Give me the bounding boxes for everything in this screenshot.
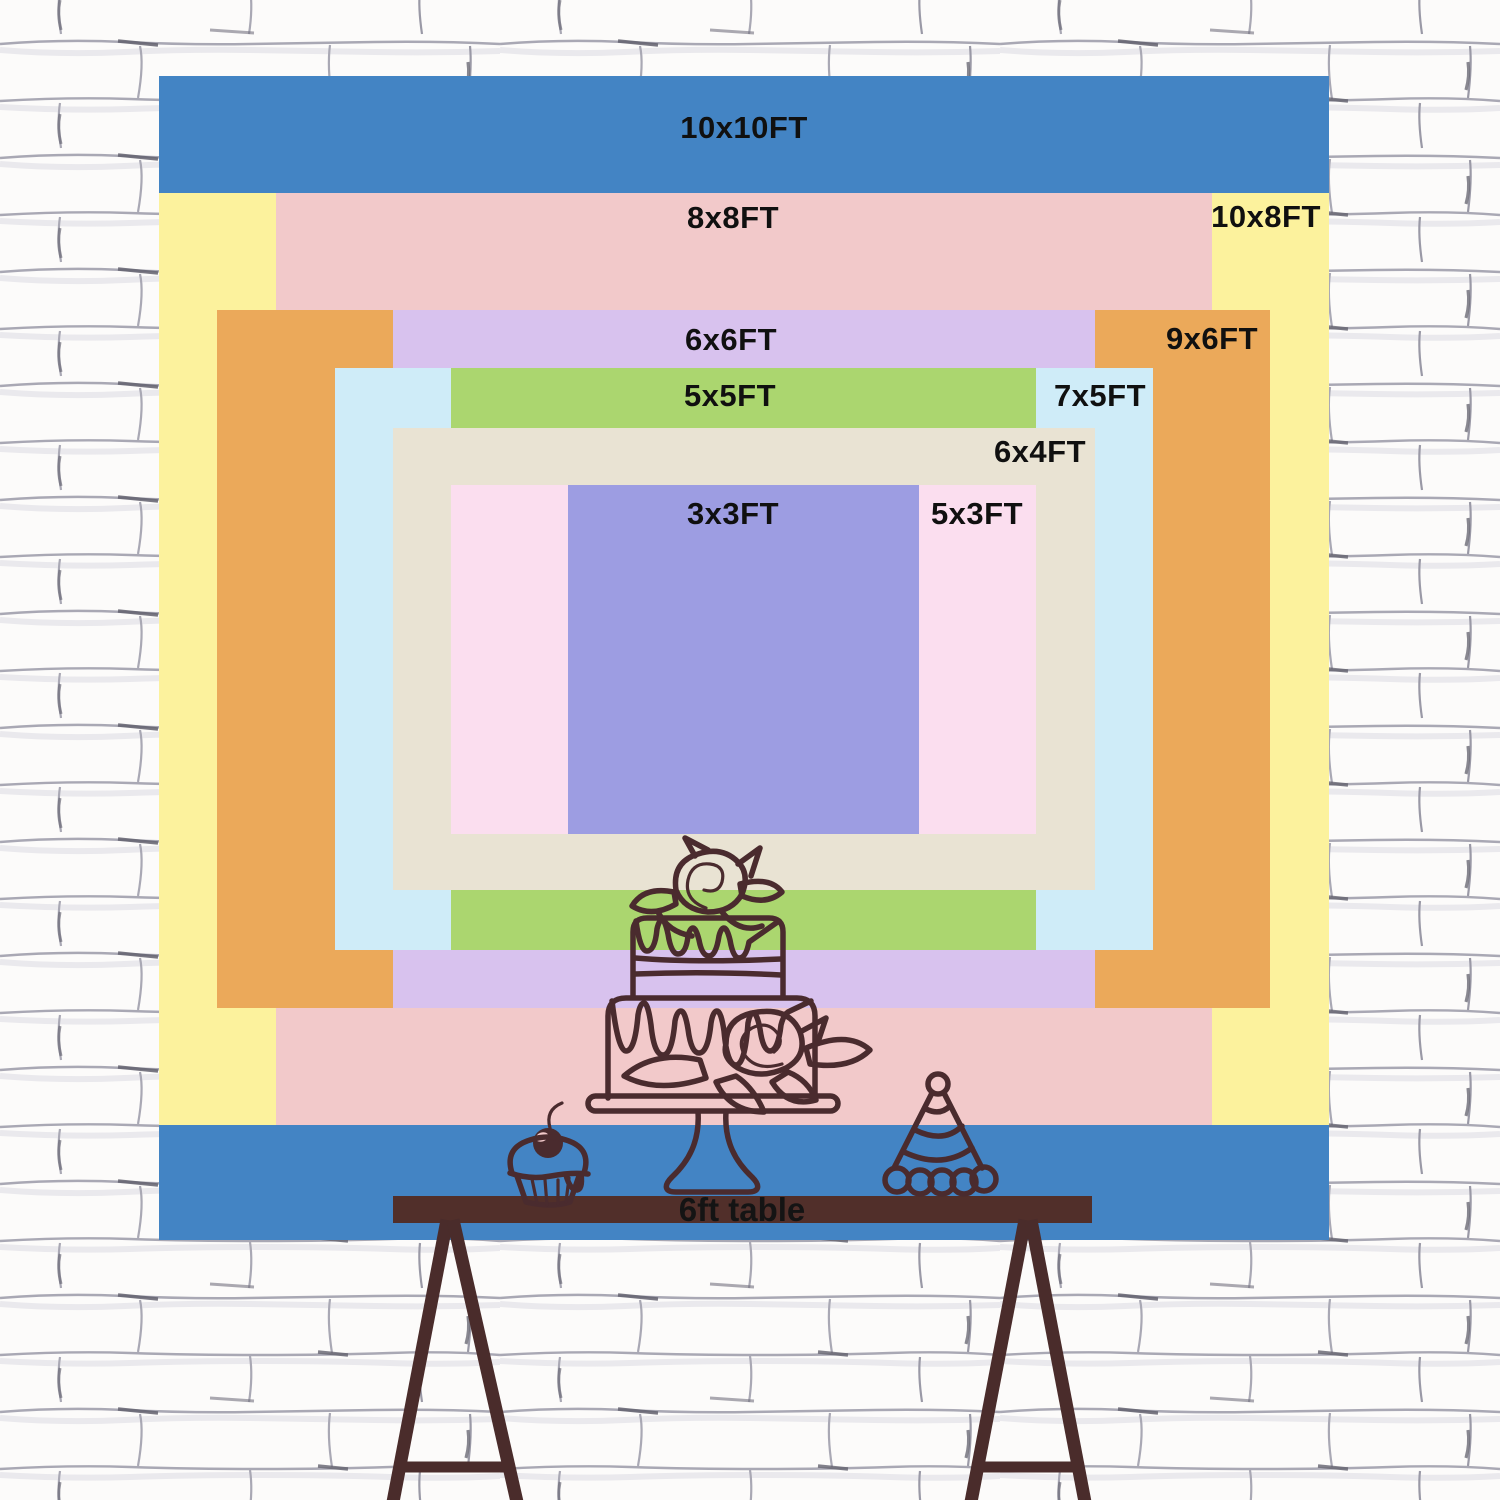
table-label: 6ft table xyxy=(679,1191,806,1229)
backdrop-size-chart-poster: 10x10FT 10x8FT 8x8FT 9x6FT 6x6FT 7x5FT 5… xyxy=(0,0,1500,1500)
label-5x5ft: 5x5FT xyxy=(684,378,776,414)
label-6x6ft: 6x6FT xyxy=(685,322,777,358)
label-10x10ft: 10x10FT xyxy=(680,110,808,146)
backdrop-3x3ft xyxy=(568,485,919,834)
label-8x8ft: 8x8FT xyxy=(687,200,779,236)
label-3x3ft: 3x3FT xyxy=(687,496,779,532)
label-9x6ft: 9x6FT xyxy=(1166,321,1258,357)
label-5x3ft: 5x3FT xyxy=(931,496,1023,532)
label-10x8ft: 10x8FT xyxy=(1211,199,1321,235)
label-7x5ft: 7x5FT xyxy=(1054,378,1146,414)
label-6x4ft: 6x4FT xyxy=(994,434,1086,470)
